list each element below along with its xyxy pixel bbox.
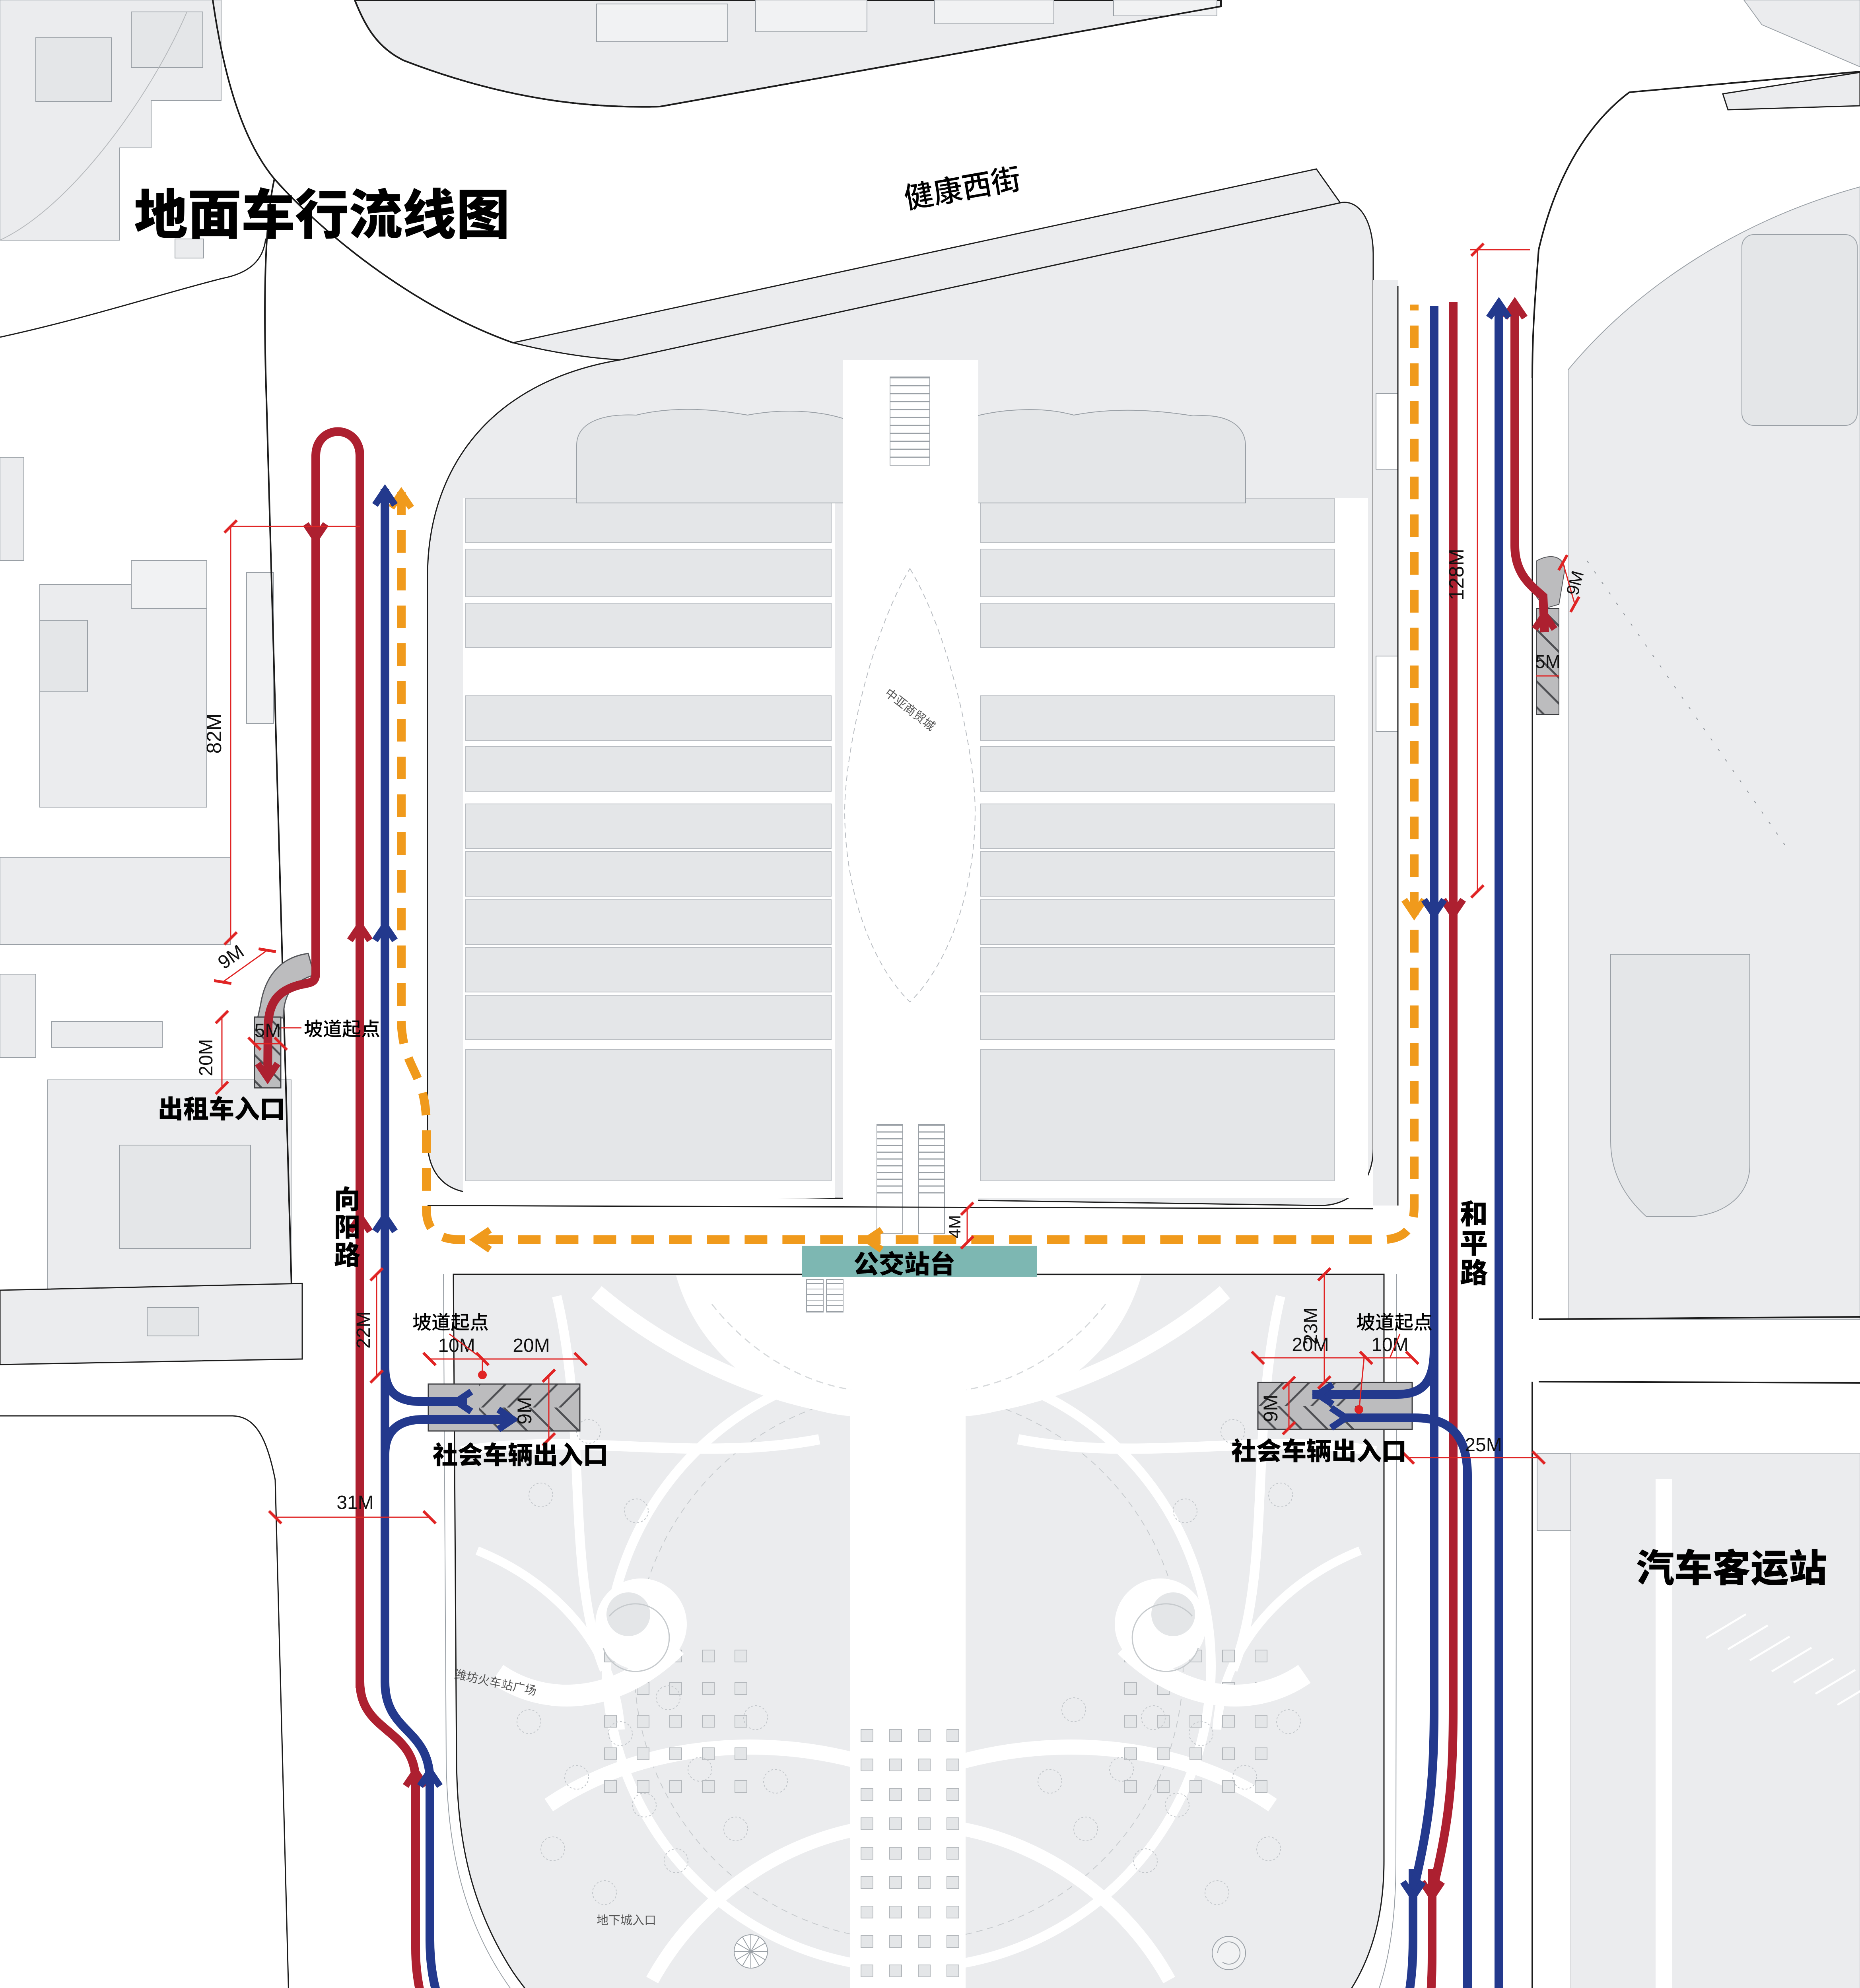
svg-text:128M: 128M [1445,549,1468,600]
svg-text:31M: 31M [336,1492,373,1513]
svg-text:82M: 82M [203,713,226,753]
svg-text:5M: 5M [255,1020,281,1041]
svg-text:10M: 10M [1371,1334,1408,1355]
svg-text:9M: 9M [1259,1394,1282,1422]
svg-text:4M: 4M [945,1215,964,1238]
svg-text:25M: 25M [1465,1435,1502,1456]
svg-text:20M: 20M [1292,1334,1329,1355]
svg-text:9M: 9M [513,1397,536,1424]
svg-text:20M: 20M [196,1039,217,1076]
svg-text:5M: 5M [1535,651,1561,672]
svg-text:20M: 20M [513,1335,550,1356]
svg-text:10M: 10M [438,1335,475,1356]
svg-text:22M: 22M [353,1311,374,1348]
